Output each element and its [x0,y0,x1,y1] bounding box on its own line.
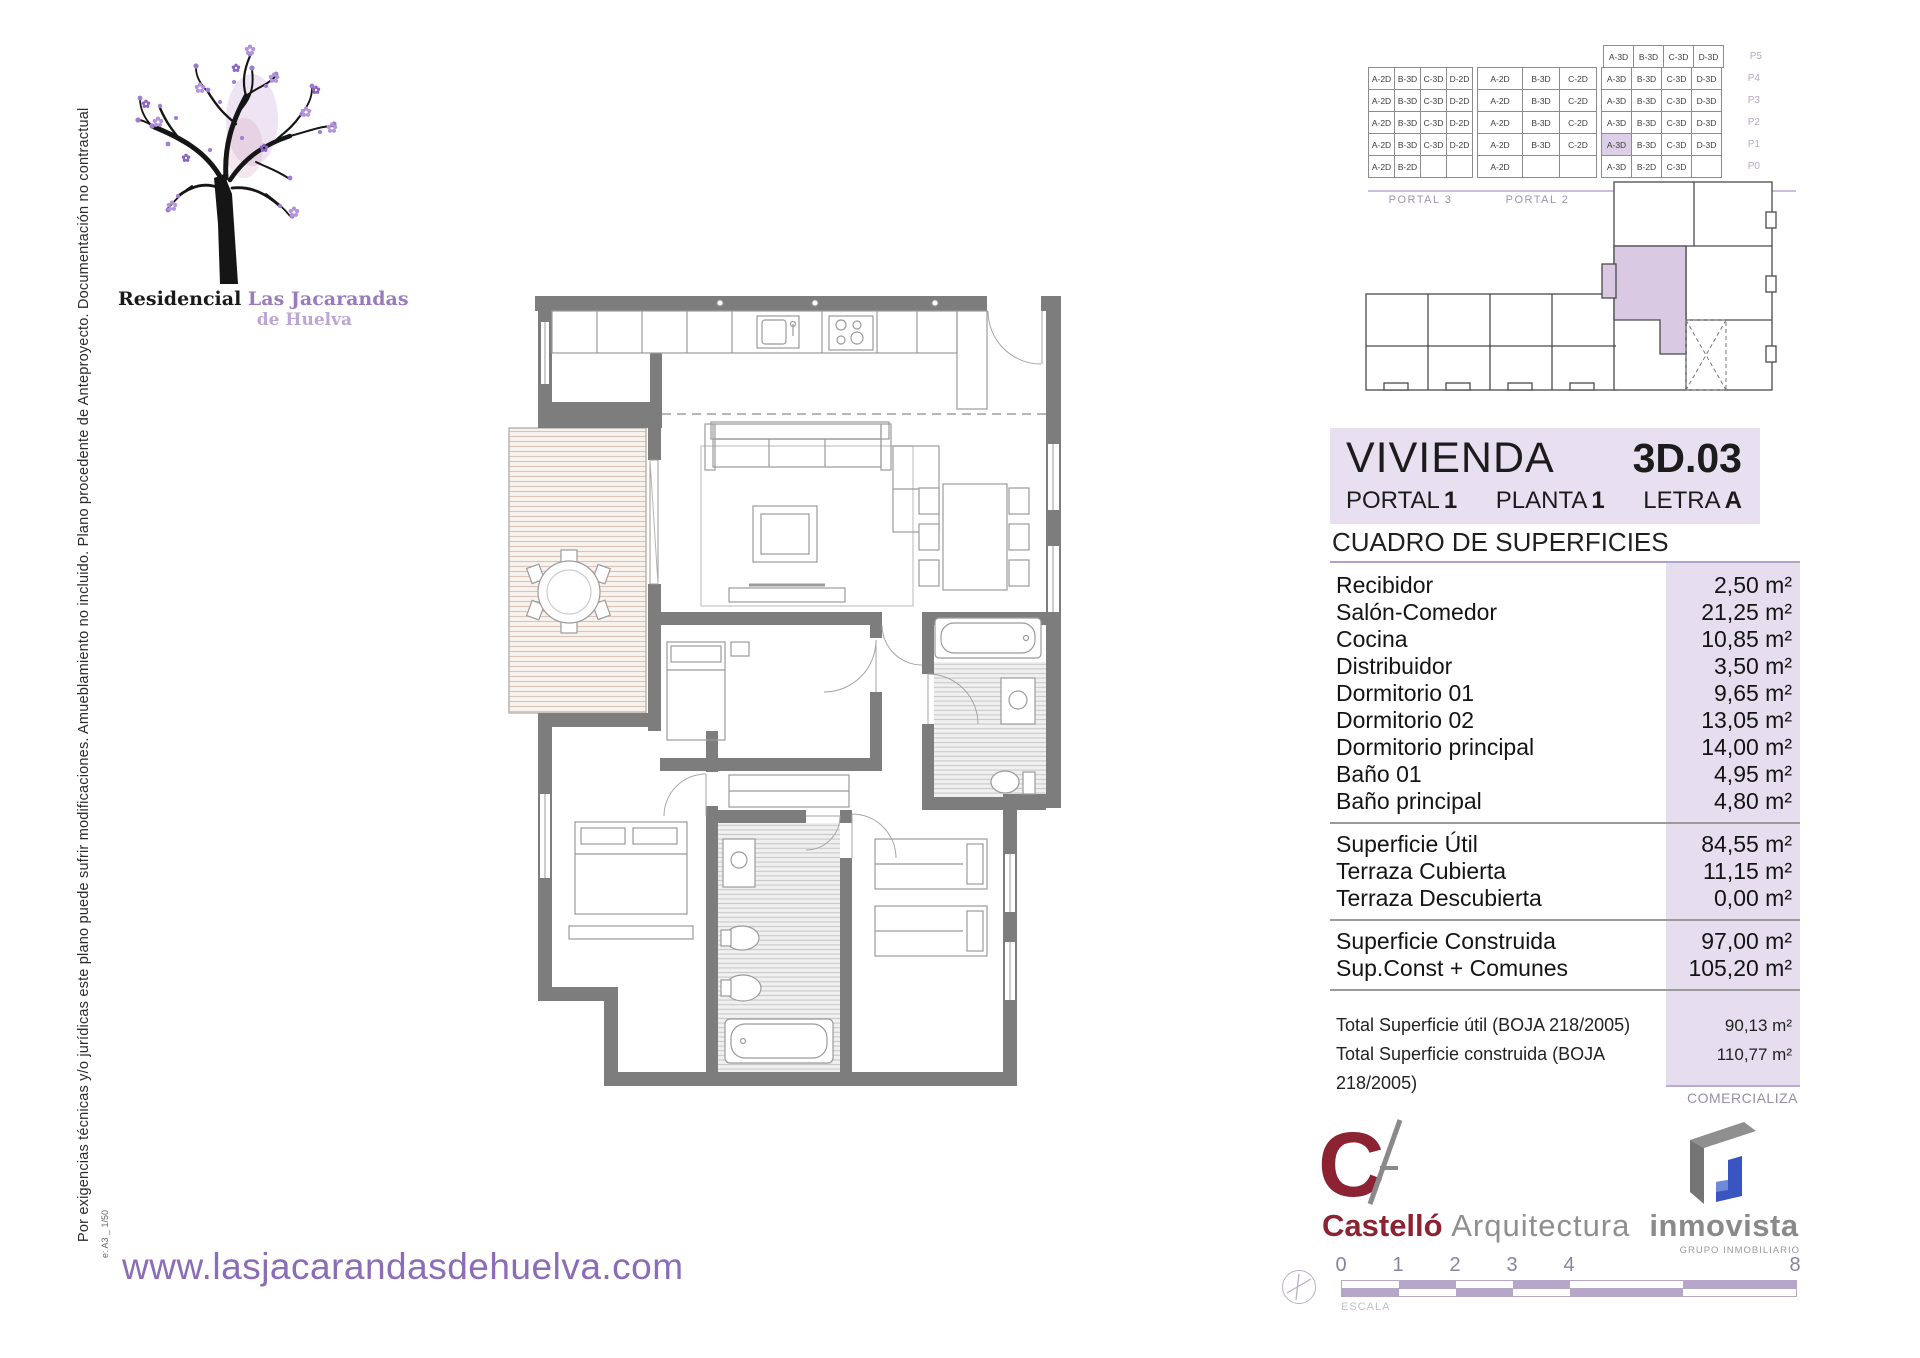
unit-code: 3D.03 [1633,435,1742,482]
surface-label: Dormitorio 02 [1330,707,1474,734]
surface-value: 3,50 m² [1652,653,1800,680]
website-url: www.lasjacarandasdehuelva.com [122,1246,684,1288]
stack-unit-cell: A-3D [1601,133,1632,156]
surfaces-section: Total Superficie útil (BOJA 218/2005)90,… [1330,989,1800,1105]
scale-label: ESCALA [1341,1301,1797,1313]
stack-unit-cell: A-2D [1368,89,1395,112]
surface-label: Recibidor [1330,572,1433,599]
surface-value: 2,50 m² [1652,572,1800,599]
stack-unit-cell: A-3D [1601,67,1632,90]
surface-row: Terraza Cubierta11,15 m² [1330,858,1800,885]
surfaces-title: CUADRO DE SUPERFICIES [1332,527,1669,558]
dormitorio-01 [875,839,987,956]
surface-label: Superficie Construida [1330,928,1556,955]
surface-value: 14,00 m² [1652,734,1800,761]
surface-label: Cocina [1330,626,1408,653]
stack-unit-cell: C-3D [1420,67,1447,90]
stack-floor-row: A-2DB-3DC-3DD-2DA-2DB-3DC-2DA-3DB-3DC-3D… [1368,89,1764,112]
surface-value: 11,15 m² [1652,858,1800,885]
stack-unit-cell: A-3D [1601,155,1632,178]
surface-row: Superficie Útil84,55 m² [1330,831,1800,858]
stack-floor-label: P4 [1726,67,1762,90]
surface-value: 21,25 m² [1652,599,1800,626]
stack-unit-cell: A-2D [1477,133,1523,156]
stack-floor-label: P0 [1726,155,1762,178]
surface-row: Recibidor2,50 m² [1330,572,1800,599]
surface-row: Distribuidor3,50 m² [1330,653,1800,680]
surface-label: Superficie Útil [1330,831,1478,858]
inmovista-wordmark: inmovista [1648,1208,1800,1244]
stack-unit-cell: D-2D [1446,111,1473,134]
surface-label: Terraza Descubierta [1330,885,1542,912]
stack-floor-label: P2 [1726,111,1762,134]
surface-row: Salón-Comedor21,25 m² [1330,599,1800,626]
logo-name: Las Jacarandas [248,288,409,310]
stack-unit-cell: B-3D [1631,89,1662,112]
scale-tick-labels: 012348 [1341,1254,1797,1278]
surface-row: Baño principal4,80 m² [1330,788,1800,815]
unit-header: VIVIENDA 3D.03 PORTAL1 PLANTA1 LETRAA [1330,428,1760,524]
surface-value: 0,00 m² [1652,885,1800,912]
stack-unit-cell: C-2D [1559,111,1597,134]
surface-label: Total Superficie útil (BOJA 218/2005) [1330,1011,1630,1040]
surface-label: Sup.Const + Comunes [1330,955,1568,982]
letra-field: LETRAA [1643,487,1742,515]
surface-row: Terraza Descubierta0,00 m² [1330,885,1800,912]
stack-unit-cell: A-2D [1477,111,1523,134]
stack-unit-cell: B-3D [1631,111,1662,134]
surface-row: Dormitorio 019,65 m² [1330,680,1800,707]
stack-unit-cell [1691,155,1722,178]
stack-unit-cell: A-2D [1477,89,1523,112]
stack-unit-cell: A-2D [1368,111,1395,134]
surface-label: Baño principal [1330,788,1482,815]
scale-segment [1342,1281,1399,1288]
surface-value: 105,20 m² [1652,955,1800,982]
stack-unit-cell: A-2D [1368,155,1395,178]
scale-segment [1342,1289,1399,1296]
stack-unit-cell: B-3D [1633,45,1664,68]
compass-icon [1282,1270,1316,1304]
scale-segment [1683,1281,1796,1288]
scale-segment [1513,1281,1570,1288]
dormitorio-principal [667,642,749,740]
stack-unit-cell: C-3D [1661,155,1692,178]
surface-value: 97,00 m² [1652,928,1800,955]
stack-unit-cell: B-2D [1394,155,1421,178]
surface-row: Dormitorio 0213,05 m² [1330,707,1800,734]
scale-segment [1683,1289,1796,1296]
stack-unit-cell: B-3D [1522,133,1560,156]
stack-unit-cell: B-3D [1522,67,1560,90]
surface-value: 4,95 m² [1652,761,1800,788]
surface-row: Total Superficie útil (BOJA 218/2005)90,… [1330,1011,1800,1040]
stack-unit-cell: B-3D [1522,89,1560,112]
scale-tick: 3 [1506,1254,1517,1277]
scale-tick: 0 [1335,1254,1346,1277]
surface-value: 4,80 m² [1652,788,1800,815]
stack-unit-cell: B-2D [1631,155,1662,178]
stack-unit-cell: B-3D [1631,67,1662,90]
stack-unit-cell: D-3D [1691,133,1722,156]
disclaimer-text: Por exigencias técnicas y/o jurídicas es… [76,92,92,1242]
stack-unit-cell: D-3D [1691,89,1722,112]
castello-wordmark: Castelló Arquitectura [1322,1208,1630,1244]
scale-segment [1456,1281,1513,1288]
wardrobe [729,775,849,807]
jacaranda-tree-icon [124,28,348,286]
dormitorio-02 [569,822,693,939]
stack-unit-cell [1559,155,1597,178]
surface-row: Sup.Const + Comunes105,20 m² [1330,955,1800,982]
surfaces-table: Recibidor2,50 m²Salón-Comedor21,25 m²Coc… [1330,565,1800,1105]
kitchen [552,311,987,409]
stack-floor-label: P5 [1728,45,1764,68]
stack-unit-cell: C-3D [1420,89,1447,112]
scale-segment [1399,1281,1456,1288]
stack-unit-cell: B-3D [1522,111,1560,134]
surface-row: Dormitorio principal14,00 m² [1330,734,1800,761]
stack-unit-cell: A-3D [1603,45,1634,68]
stack-unit-cell: A-2D [1477,67,1523,90]
surface-value: 9,65 m² [1652,680,1800,707]
stack-unit-cell: B-3D [1394,67,1421,90]
surface-label: Dormitorio principal [1330,734,1534,761]
scale-tick: 8 [1789,1254,1800,1277]
logo-brand: Residencial [118,288,241,310]
surfaces-section: Superficie Construida97,00 m²Sup.Const +… [1330,919,1800,989]
stack-floor-row: A-2DB-3DC-3DD-2DA-2DB-3DC-2DA-3DB-3DC-3D… [1368,111,1764,134]
stack-floor-row: A-2DB-2DA-2DA-3DB-2DC-3DP0 [1368,155,1764,178]
stack-unit-cell: A-2D [1477,155,1523,178]
stack-unit-cell: C-3D [1663,45,1694,68]
stack-unit-cell: C-2D [1559,67,1597,90]
sheet-scale-note: e: A3 _ 1/50 [100,1188,110,1258]
plan-sheet: Por exigencias técnicas y/o jurídicas es… [0,0,1920,1358]
scale-segment [1513,1289,1570,1296]
scale-tick: 4 [1563,1254,1574,1277]
dining-area [919,484,1029,590]
residencial-logo: Residencial Las Jacarandas de Huelva [118,28,354,330]
portal-field: PORTAL1 [1346,487,1457,515]
surface-label: Distribuidor [1330,653,1452,680]
stack-unit-cell: A-2D [1368,133,1395,156]
logo-sub: de Huelva [118,310,354,330]
scale-segment [1570,1289,1683,1296]
stack-unit-cell: A-3D [1601,89,1632,112]
stack-floor-label: P1 [1726,133,1762,156]
inmovista-logo: inmovista GRUPO INMOBILIARIO [1648,1112,1800,1256]
stack-unit-cell: C-3D [1661,111,1692,134]
stack-unit-cell [1420,155,1447,178]
logo-text: Residencial Las Jacarandas [118,288,354,310]
scale-segment [1456,1289,1513,1296]
surface-row: Baño 014,95 m² [1330,761,1800,788]
stack-unit-cell: C-3D [1420,111,1447,134]
scale-bar [1341,1280,1797,1297]
scale-segment [1399,1289,1456,1296]
stack-unit-cell: D-2D [1446,89,1473,112]
scale-bar-area: 012348 ESCALA [1341,1254,1797,1313]
stack-unit-cell: A-2D [1368,67,1395,90]
stack-unit-cell: B-3D [1394,111,1421,134]
stack-unit-cell [1522,155,1560,178]
stack-unit-cell [1446,155,1473,178]
surfaces-section: Superficie Útil84,55 m²Terraza Cubierta1… [1330,822,1800,919]
apartment-floor-plan [505,294,1065,1108]
stack-unit-cell: C-3D [1661,89,1692,112]
surface-label: Baño 01 [1330,761,1422,788]
surface-value: 10,85 m² [1652,626,1800,653]
stack-unit-cell: C-3D [1420,133,1447,156]
stack-unit-cell: A-3D [1601,111,1632,134]
surface-value: 13,05 m² [1652,707,1800,734]
stack-unit-cell: D-3D [1691,111,1722,134]
comercializa-label: COMERCIALIZA [1630,1090,1798,1106]
living-room [701,424,939,606]
stack-unit-cell: D-3D [1693,45,1724,68]
building-key-plan [1356,176,1786,418]
surface-label: Dormitorio 01 [1330,680,1474,707]
stack-floor-label: P3 [1726,89,1762,112]
scale-tick: 2 [1449,1254,1460,1277]
stack-unit-cell: D-2D [1446,133,1473,156]
surface-value: 84,55 m² [1652,831,1800,858]
stack-unit-cell: B-3D [1631,133,1662,156]
surface-row: Cocina10,85 m² [1330,626,1800,653]
stack-unit-cell: C-3D [1661,133,1692,156]
building-stack-table: A-3DB-3DC-3DD-3DP5A-2DB-3DC-3DD-2DA-2DB-… [1368,46,1764,178]
surface-value: 90,13 m² [1652,1011,1800,1040]
planta-field: PLANTA1 [1496,487,1605,515]
stack-unit-cell: D-2D [1446,67,1473,90]
surface-label: Salón-Comedor [1330,599,1497,626]
scale-segment [1570,1281,1683,1288]
stack-unit-cell: C-2D [1559,89,1597,112]
stack-unit-cell: C-2D [1559,133,1597,156]
stack-floor-row: A-3DB-3DC-3DD-3DP5 [1368,45,1764,68]
scale-tick: 1 [1392,1254,1403,1277]
stack-unit-cell: D-3D [1691,67,1722,90]
inmovista-mark-icon [1672,1112,1776,1208]
stack-unit-cell: B-3D [1394,133,1421,156]
stack-floor-row: A-2DB-3DC-3DD-2DA-2DB-3DC-2DA-3DB-3DC-3D… [1368,133,1764,156]
surface-label: Terraza Cubierta [1330,858,1506,885]
surface-label: Total Superficie construida (BOJA 218/20… [1330,1040,1663,1098]
surface-row: Superficie Construida97,00 m² [1330,928,1800,955]
stack-unit-cell: C-3D [1661,67,1692,90]
surfaces-section: Recibidor2,50 m²Salón-Comedor21,25 m²Coc… [1330,565,1800,822]
vivienda-label: VIVIENDA [1346,434,1555,483]
stack-unit-cell: B-3D [1394,89,1421,112]
stack-floor-row: A-2DB-3DC-3DD-2DA-2DB-3DC-2DA-3DB-3DC-3D… [1368,67,1764,90]
castello-logo: C Castelló Arquitectura [1318,1116,1668,1256]
castello-mark-icon: C [1318,1116,1418,1208]
